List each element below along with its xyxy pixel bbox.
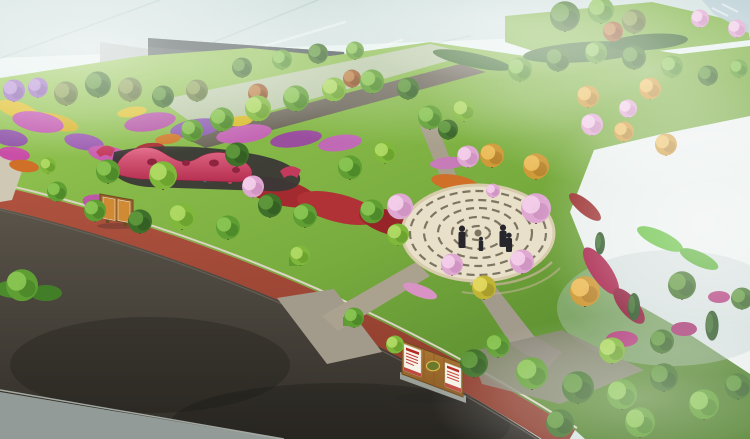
person-figure xyxy=(458,226,465,248)
scene-canvas xyxy=(0,0,750,439)
park-rendering xyxy=(0,0,750,439)
person-figure xyxy=(499,225,506,247)
plaza-center xyxy=(475,230,482,237)
person-figure xyxy=(479,237,483,251)
wall-emblem xyxy=(427,361,440,371)
person-figure xyxy=(506,233,512,252)
